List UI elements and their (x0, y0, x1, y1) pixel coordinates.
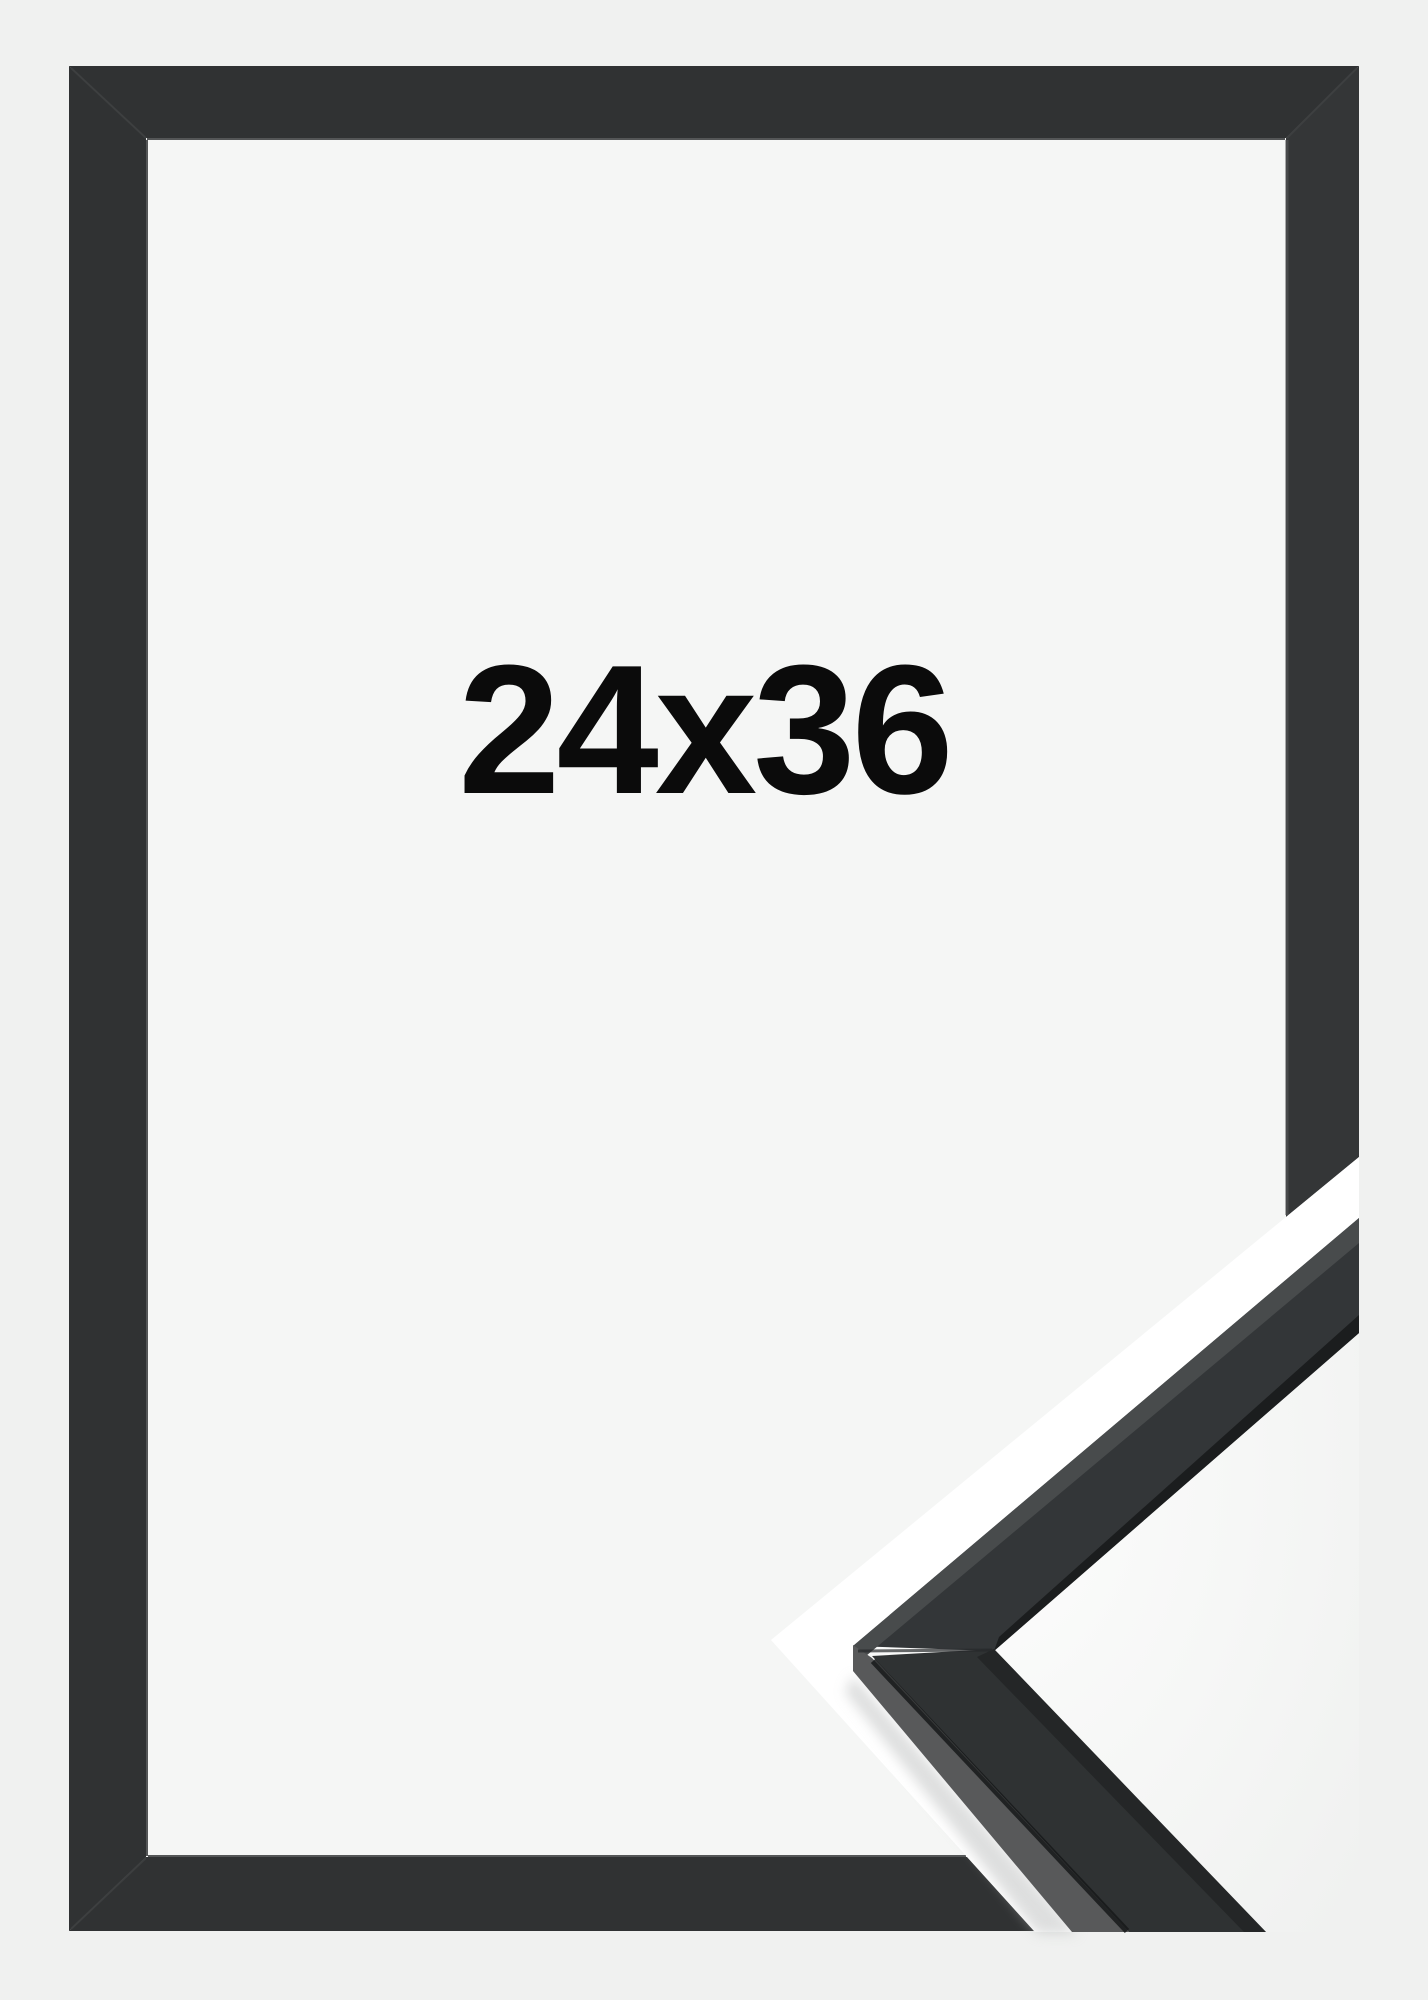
moulding-miter-seam (858, 1650, 992, 1651)
frame-bottom-bar (69, 1857, 1034, 1931)
frame-right-bar (1286, 66, 1359, 1217)
frame-left-bar (69, 66, 146, 1931)
frame-product-photo: 24x36 (0, 0, 1428, 2000)
product-image: 24x36 (0, 0, 1428, 2000)
frame-top-bar (69, 66, 1359, 138)
frame-size-label: 24x36 (458, 626, 950, 832)
